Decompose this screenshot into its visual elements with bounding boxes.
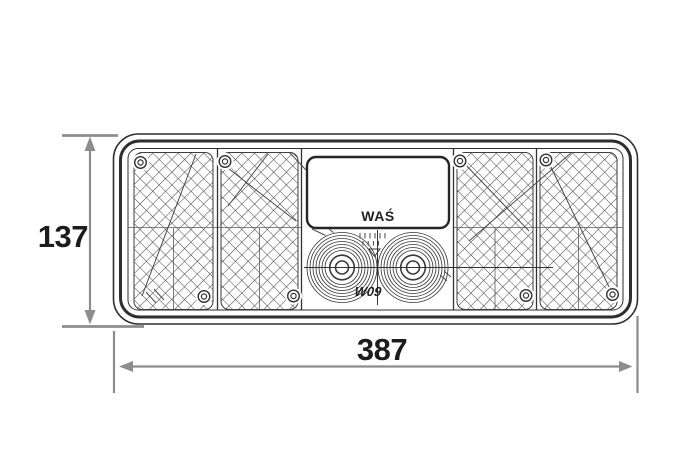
screw-icon — [217, 153, 234, 170]
model-marking-label: W09 — [337, 285, 398, 298]
screw-icon — [538, 152, 555, 169]
screw-icon — [452, 153, 469, 170]
arrow-left-icon — [119, 361, 133, 372]
screw-icon — [285, 288, 302, 305]
height-dimension-label: 137 — [32, 221, 88, 252]
technical-drawing-canvas: 137 387 WAŚ W09 — [0, 0, 700, 465]
screw-icon — [132, 154, 149, 171]
width-dimension-label: 387 — [351, 334, 413, 365]
arrow-right-icon — [619, 361, 633, 372]
arrow-down-icon — [85, 310, 96, 325]
screw-icon — [196, 288, 213, 305]
lamp-line-drawing — [0, 0, 700, 465]
screw-icon — [604, 286, 621, 303]
brand-marking-label: WAŚ — [341, 209, 415, 223]
arrow-up-icon — [85, 137, 96, 152]
screw-icon — [518, 287, 535, 304]
